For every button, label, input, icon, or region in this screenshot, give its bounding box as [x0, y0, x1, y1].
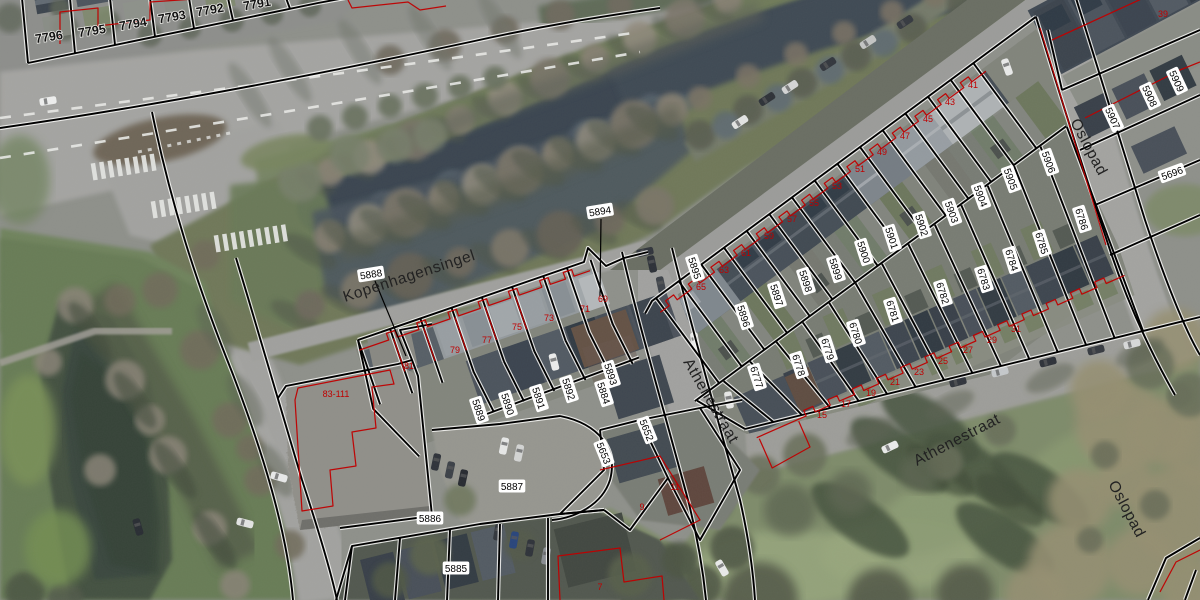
svg-text:53: 53: [832, 181, 842, 191]
svg-text:69: 69: [598, 294, 608, 304]
svg-text:41: 41: [968, 80, 978, 90]
svg-text:55: 55: [809, 198, 819, 208]
svg-text:9: 9: [639, 502, 644, 512]
svg-text:31: 31: [1011, 324, 1021, 334]
svg-text:51: 51: [855, 164, 865, 174]
svg-text:45: 45: [923, 114, 933, 124]
svg-text:5885: 5885: [445, 564, 468, 575]
svg-text:49: 49: [877, 147, 887, 157]
svg-text:65: 65: [696, 282, 706, 292]
svg-text:7: 7: [597, 582, 602, 592]
svg-text:5887: 5887: [501, 482, 524, 493]
svg-text:57: 57: [787, 214, 797, 224]
svg-text:29: 29: [987, 335, 997, 345]
svg-text:75: 75: [512, 322, 522, 332]
svg-text:83-111: 83-111: [323, 389, 350, 399]
svg-text:81: 81: [404, 361, 414, 371]
svg-text:47: 47: [900, 131, 910, 141]
svg-text:73: 73: [544, 313, 554, 323]
svg-text:27: 27: [963, 345, 973, 355]
svg-text:15: 15: [817, 410, 827, 420]
svg-text:61: 61: [741, 248, 751, 258]
svg-text:23: 23: [914, 367, 924, 377]
svg-text:21: 21: [890, 377, 900, 387]
svg-text:63: 63: [719, 265, 729, 275]
svg-text:71: 71: [580, 304, 590, 314]
svg-text:11: 11: [670, 482, 679, 492]
svg-text:17: 17: [841, 399, 851, 409]
svg-text:79: 79: [450, 345, 460, 355]
svg-text:5886: 5886: [419, 514, 442, 525]
svg-text:19: 19: [866, 388, 876, 398]
svg-text:39: 39: [1158, 9, 1168, 19]
svg-text:59: 59: [764, 231, 774, 241]
svg-text:43: 43: [945, 97, 955, 107]
svg-text:25: 25: [938, 356, 948, 366]
svg-text:77: 77: [482, 335, 492, 345]
